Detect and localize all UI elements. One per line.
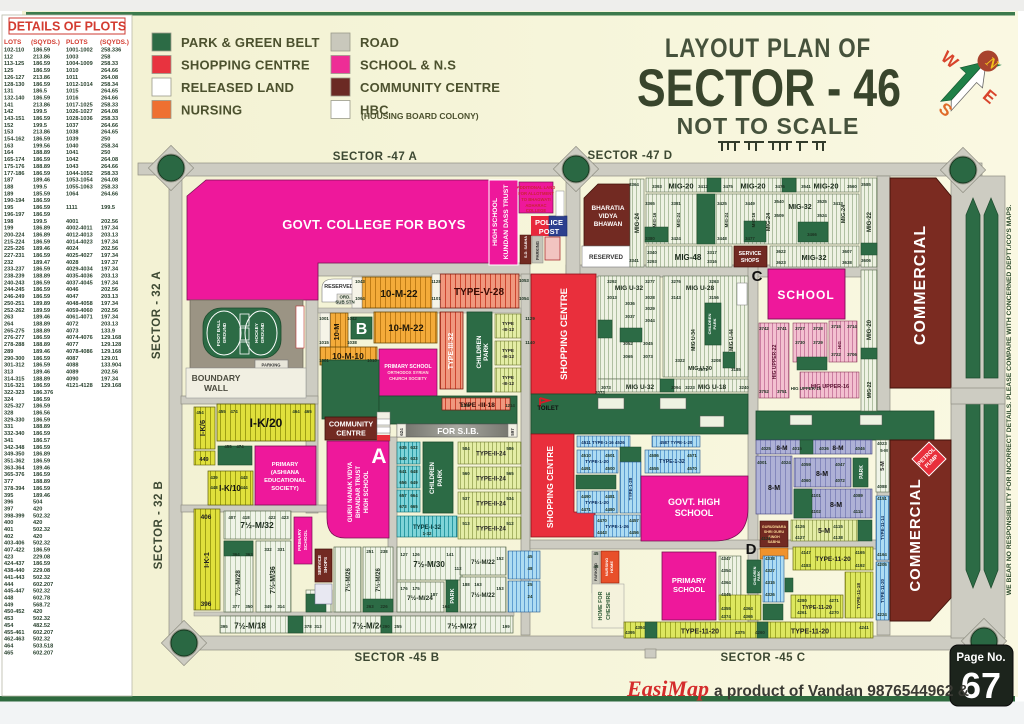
svg-text:190-194: 190-194 (4, 198, 25, 204)
svg-text:1015: 1015 (319, 340, 329, 345)
svg-text:197.34: 197.34 (101, 267, 119, 273)
svg-text:3365: 3365 (645, 201, 655, 206)
svg-text:4121-4128: 4121-4128 (66, 383, 93, 389)
svg-text:199.5: 199.5 (33, 185, 47, 191)
svg-text:NOT TO SCALE: NOT TO SCALE (677, 113, 860, 139)
svg-text:3623: 3623 (776, 260, 786, 265)
svg-text:314-315: 314-315 (4, 376, 25, 382)
svg-text:4114: 4114 (853, 509, 863, 514)
svg-text:45: 45 (528, 554, 533, 559)
svg-text:GROUND: GROUND (260, 322, 265, 343)
svg-text:1026-1027: 1026-1027 (66, 109, 93, 115)
svg-text:MIG-16: MIG-16 (652, 212, 657, 227)
svg-text:197.34: 197.34 (101, 301, 119, 307)
svg-text:1053-1054: 1053-1054 (66, 178, 94, 184)
svg-text:198: 198 (4, 219, 13, 225)
svg-text:4491: 4491 (581, 466, 591, 471)
svg-text:GOVT. HIGH: GOVT. HIGH (668, 497, 720, 507)
svg-text:CHESHIRE: CHESHIRE (606, 592, 612, 620)
svg-text:SCHOOL: SCHOOL (777, 288, 834, 302)
svg-text:COMMERCIAL: COMMERCIAL (912, 225, 929, 345)
svg-text:188: 188 (462, 582, 470, 587)
svg-text:534: 534 (506, 496, 514, 501)
svg-text:TYPE-II-24: TYPE-II-24 (476, 452, 506, 458)
svg-text:584: 584 (462, 446, 470, 451)
svg-text:25: 25 (528, 582, 533, 587)
svg-text:COMMERCIAL: COMMERCIAL (907, 478, 924, 591)
svg-text:TYPE-1-20: TYPE-1-20 (585, 459, 609, 465)
svg-text:FOOT BALL: FOOT BALL (216, 320, 221, 346)
svg-text:455: 455 (224, 444, 232, 449)
svg-text:A: A (371, 445, 386, 468)
svg-text:186.59: 186.59 (33, 253, 50, 259)
svg-text:7½-M/30: 7½-M/30 (413, 560, 445, 569)
svg-text:3276: 3276 (671, 279, 681, 284)
svg-text:229.08: 229.08 (33, 568, 50, 574)
svg-text:MIG-22: MIG-22 (867, 381, 873, 398)
svg-text:10-M-22: 10-M-22 (380, 289, 418, 300)
svg-text:565: 565 (506, 471, 514, 476)
svg-text:TYPE-11-20: TYPE-11-20 (791, 629, 829, 636)
svg-text:453: 453 (4, 616, 13, 622)
svg-text:PRIMARY: PRIMARY (297, 528, 303, 551)
svg-text:132-140: 132-140 (4, 95, 25, 101)
svg-text:CHILDREN: CHILDREN (476, 335, 483, 368)
svg-text:4586: 4586 (649, 453, 659, 458)
svg-text:4587 TYPE-1-20: 4587 TYPE-1-20 (660, 440, 693, 445)
svg-text:4047: 4047 (835, 462, 845, 467)
svg-text:395: 395 (4, 493, 13, 499)
svg-text:1003: 1003 (66, 54, 78, 60)
svg-text:5-M: 5-M (880, 448, 888, 453)
svg-text:314: 314 (277, 604, 285, 609)
svg-text:402: 402 (4, 534, 13, 540)
svg-text:3540: 3540 (774, 199, 784, 204)
svg-text:4183: 4183 (801, 563, 811, 568)
svg-text:189.46: 189.46 (33, 315, 50, 321)
svg-text:186.59: 186.59 (33, 287, 50, 293)
svg-text:640: 640 (399, 456, 407, 461)
svg-text:3143: 3143 (671, 295, 681, 300)
svg-text:203.13: 203.13 (101, 294, 118, 300)
svg-text:4023: 4023 (877, 441, 887, 446)
svg-text:186.59: 186.59 (33, 404, 50, 410)
svg-text:TOILET: TOILET (537, 406, 559, 412)
svg-text:202.56: 202.56 (101, 219, 118, 225)
svg-text:329-330: 329-330 (4, 417, 25, 423)
svg-text:SECTOR -45 C: SECTOR -45 C (720, 652, 805, 664)
svg-text:3317: 3317 (707, 250, 717, 255)
svg-text:SHOPS: SHOPS (323, 557, 328, 573)
svg-text:MIG U-44: MIG U-44 (729, 329, 735, 351)
svg-text:186.59: 186.59 (33, 548, 50, 554)
svg-text:635: 635 (399, 445, 407, 450)
svg-text:202.56: 202.56 (101, 287, 118, 293)
svg-text:4241: 4241 (859, 625, 869, 630)
svg-text:113-125: 113-125 (4, 61, 24, 67)
svg-text:4271: 4271 (829, 598, 839, 603)
svg-text:188.89: 188.89 (33, 164, 50, 170)
svg-text:141: 141 (4, 102, 13, 108)
svg-text:1016: 1016 (66, 95, 78, 101)
svg-text:COMMUNITY: COMMUNITY (329, 420, 374, 429)
svg-text:423: 423 (4, 554, 13, 560)
svg-text:422: 422 (268, 515, 276, 520)
svg-text:154-162: 154-162 (4, 137, 25, 143)
svg-text:7½-M/24: 7½-M/24 (352, 622, 384, 631)
svg-text:1028-1036: 1028-1036 (66, 116, 93, 122)
svg-text:186.59: 186.59 (33, 486, 50, 492)
svg-text:325-327: 325-327 (4, 404, 25, 410)
svg-text:188.89: 188.89 (33, 342, 50, 348)
svg-text:3094: 3094 (671, 385, 681, 390)
svg-text:SHOPPING CENTRE: SHOPPING CENTRE (181, 57, 310, 72)
svg-text:186.59: 186.59 (33, 417, 50, 423)
svg-text:396: 396 (201, 601, 212, 608)
svg-text:512: 512 (506, 521, 514, 526)
svg-text:1012-1014: 1012-1014 (66, 82, 94, 88)
svg-text:(SQYDS.): (SQYDS.) (31, 39, 60, 46)
svg-text:1064: 1064 (66, 191, 79, 197)
svg-text:SOCIETY): SOCIETY) (271, 486, 298, 492)
svg-text:1038: 1038 (347, 340, 357, 345)
svg-text:-III-12: -III-12 (502, 354, 514, 359)
svg-text:258: 258 (101, 54, 110, 60)
svg-text:7½-M/22: 7½-M/22 (471, 592, 495, 599)
svg-text:186.59: 186.59 (33, 561, 50, 567)
svg-text:276-277: 276-277 (4, 335, 25, 341)
svg-text:1010: 1010 (367, 358, 377, 363)
svg-text:4090: 4090 (66, 376, 78, 382)
svg-text:641: 641 (399, 469, 407, 474)
svg-text:186.5: 186.5 (33, 89, 47, 95)
svg-text:HIG UPPER-16: HIG UPPER-16 (791, 386, 822, 391)
svg-text:I-K-1: I-K-1 (204, 552, 211, 568)
svg-text:186.59: 186.59 (33, 82, 50, 88)
svg-text:263: 263 (366, 604, 374, 609)
svg-text:3380: 3380 (645, 236, 655, 241)
svg-text:SCHOOL: SCHOOL (303, 530, 309, 551)
svg-text:202.56: 202.56 (101, 369, 118, 375)
svg-text:164: 164 (442, 604, 450, 609)
svg-text:322-323: 322-323 (4, 390, 25, 396)
svg-text:188.89: 188.89 (33, 328, 50, 334)
svg-text:264.08: 264.08 (101, 157, 118, 163)
svg-text:189: 189 (4, 191, 13, 197)
svg-text:7½-M/18: 7½-M/18 (234, 622, 266, 631)
svg-text:45: 45 (594, 551, 599, 556)
svg-text:MIG-20: MIG-20 (813, 182, 838, 191)
svg-text:1140: 1140 (525, 340, 535, 345)
svg-text:141: 141 (446, 552, 454, 557)
svg-text:133.904: 133.904 (101, 363, 122, 369)
svg-text:189.46: 189.46 (33, 246, 50, 252)
svg-text:365-376: 365-376 (4, 472, 25, 478)
svg-text:238-239: 238-239 (4, 274, 25, 280)
svg-text:186.59: 186.59 (33, 212, 50, 218)
svg-text:PARK: PARK (483, 343, 490, 361)
svg-text:143-151: 143-151 (4, 116, 25, 122)
svg-text:1040: 1040 (66, 143, 78, 149)
svg-text:465: 465 (304, 409, 312, 414)
svg-text:3171: 3171 (698, 367, 708, 372)
svg-text:DETAILS OF PLOTS: DETAILS OF PLOTS (8, 20, 127, 34)
svg-text:1015: 1015 (66, 89, 78, 95)
svg-text:513: 513 (462, 521, 470, 526)
svg-text:3013: 3013 (607, 295, 617, 300)
svg-text:197.34: 197.34 (101, 280, 119, 286)
svg-text:199.5: 199.5 (101, 205, 115, 211)
svg-text:176: 176 (400, 586, 408, 591)
svg-text:PARK: PARK (437, 469, 444, 487)
svg-text:420: 420 (33, 534, 42, 540)
svg-text:186.89: 186.89 (33, 452, 50, 458)
svg-text:8-M: 8-M (816, 471, 828, 478)
svg-text:48: 48 (528, 566, 533, 571)
svg-text:TYPE-II-24: TYPE-II-24 (476, 502, 506, 508)
svg-text:7½-M/36: 7½-M/36 (269, 566, 277, 594)
svg-text:4060: 4060 (801, 478, 811, 483)
svg-text:142: 142 (4, 109, 13, 115)
svg-text:4048-4058: 4048-4058 (66, 301, 93, 307)
svg-text:(SQYDS.): (SQYDS.) (100, 39, 129, 46)
svg-text:186.376: 186.376 (33, 390, 53, 396)
svg-text:406: 406 (201, 514, 212, 521)
svg-text:189.59: 189.59 (33, 308, 50, 314)
svg-text:264.66: 264.66 (101, 123, 118, 129)
svg-text:7½-M/28: 7½-M/28 (234, 570, 242, 596)
svg-text:3393: 3393 (652, 184, 662, 189)
svg-text:3477: 3477 (745, 236, 755, 241)
svg-text:RELEASED LAND: RELEASED LAND (181, 80, 294, 95)
svg-text:1043: 1043 (66, 164, 78, 170)
svg-text:B: B (356, 321, 368, 338)
svg-text:186.59: 186.59 (33, 294, 50, 300)
svg-text:CENTRE: CENTRE (336, 429, 366, 438)
svg-text:186.59: 186.59 (33, 205, 50, 211)
svg-text:112: 112 (4, 54, 13, 60)
svg-text:HOME FOR: HOME FOR (598, 591, 604, 620)
svg-text:4012-4013: 4012-4013 (66, 232, 93, 238)
svg-text:TYPE: TYPE (502, 375, 514, 380)
svg-text:3045: 3045 (643, 341, 653, 346)
svg-text:1039: 1039 (66, 137, 78, 143)
svg-text:465: 465 (4, 650, 13, 656)
svg-text:4072: 4072 (835, 478, 845, 483)
svg-text:SHOPPING CENTRE: SHOPPING CENTRE (559, 288, 570, 380)
svg-text:4014-4023: 4014-4023 (66, 239, 93, 245)
svg-text:24: 24 (528, 594, 533, 599)
svg-text:188.89: 188.89 (33, 274, 50, 280)
svg-text:3730: 3730 (795, 340, 805, 345)
svg-text:250: 250 (101, 137, 110, 143)
svg-text:1054: 1054 (519, 296, 529, 301)
svg-text:131: 131 (4, 89, 13, 95)
svg-text:4481: 4481 (605, 494, 615, 499)
svg-text:SECTOR - 46: SECTOR - 46 (637, 59, 901, 118)
svg-text:1042: 1042 (347, 316, 357, 321)
svg-text:4029-4034: 4029-4034 (66, 267, 94, 273)
svg-text:186.59: 186.59 (33, 198, 50, 204)
svg-text:4025: 4025 (761, 446, 771, 451)
svg-text:4443: 4443 (597, 530, 607, 535)
svg-text:SHOPS: SHOPS (741, 258, 760, 264)
svg-text:4024: 4024 (781, 460, 791, 465)
svg-text:7½-M/26: 7½-M/26 (375, 568, 382, 592)
svg-text:7½-M/32: 7½-M/32 (240, 520, 274, 530)
svg-text:FOR ALLOTMENT: FOR ALLOTMENT (518, 191, 554, 196)
svg-text:3424: 3424 (671, 236, 681, 241)
svg-text:4270: 4270 (829, 610, 839, 615)
svg-text:S.D. SABHA: S.D. SABHA (524, 236, 528, 258)
svg-text:350: 350 (245, 604, 253, 609)
svg-text:407: 407 (228, 515, 236, 520)
svg-text:445-447: 445-447 (4, 589, 25, 595)
svg-text:3466: 3466 (807, 232, 817, 237)
svg-text:633: 633 (410, 456, 418, 461)
svg-text:152: 152 (4, 123, 13, 129)
svg-text:129.168: 129.168 (101, 383, 121, 389)
svg-text:1037: 1037 (66, 123, 78, 129)
svg-text:8-M: 8-M (768, 485, 780, 492)
svg-text:8-M: 8-M (776, 445, 787, 452)
svg-text:301-312: 301-312 (4, 363, 25, 369)
svg-text:4072: 4072 (66, 322, 78, 328)
svg-text:250-251: 250-251 (4, 301, 25, 307)
svg-text:GOVT. COLLEGE FOR BOYS: GOVT. COLLEGE FOR BOYS (282, 217, 466, 232)
svg-text:186.59: 186.59 (33, 472, 50, 478)
svg-text:188: 188 (4, 185, 13, 191)
svg-text:632: 632 (410, 445, 418, 450)
svg-text:7½-M/27: 7½-M/27 (447, 622, 477, 631)
svg-text:424-437: 424-437 (4, 561, 25, 567)
svg-text:3727: 3727 (795, 326, 805, 331)
svg-text:MIG-48: MIG-48 (675, 253, 702, 262)
svg-text:502.32: 502.32 (33, 637, 50, 643)
svg-text:4260: 4260 (755, 630, 765, 635)
svg-text:4205: 4205 (877, 562, 887, 567)
svg-text:3052: 3052 (623, 341, 633, 346)
svg-text:4078-4086: 4078-4086 (66, 349, 93, 355)
svg-text:1111: 1111 (66, 205, 78, 211)
svg-text:PARKING: PARKING (535, 241, 540, 260)
svg-text:4077: 4077 (66, 342, 78, 348)
svg-text:BHANDAR TRUST: BHANDAR TRUST (356, 466, 362, 518)
svg-text:378: 378 (304, 624, 312, 629)
svg-text:363: 363 (245, 552, 253, 557)
svg-text:PARKING: PARKING (262, 363, 281, 368)
svg-text:395: 395 (220, 624, 228, 629)
svg-text:4115: 4115 (833, 524, 843, 529)
svg-text:197.34: 197.34 (101, 376, 119, 382)
svg-text:WALL: WALL (204, 383, 228, 393)
svg-text:4165: 4165 (855, 550, 865, 555)
svg-text:4024: 4024 (66, 246, 79, 252)
svg-text:203.13: 203.13 (101, 274, 118, 280)
svg-text:1042: 1042 (66, 157, 78, 163)
svg-text:398-399: 398-399 (4, 513, 25, 519)
svg-text:3364: 3364 (629, 182, 639, 187)
svg-text:ADDITIONAL LAND: ADDITIONAL LAND (517, 185, 556, 190)
svg-text:263: 263 (4, 315, 13, 321)
svg-text:3729: 3729 (813, 340, 823, 345)
svg-text:200-224: 200-224 (4, 232, 25, 238)
svg-text:423: 423 (281, 515, 289, 520)
svg-text:3638: 3638 (842, 260, 852, 265)
svg-text:449: 449 (199, 457, 208, 463)
svg-text:3037: 3037 (625, 314, 635, 319)
svg-text:SCHOOL & N.S: SCHOOL & N.S (360, 57, 456, 72)
svg-text:665: 665 (410, 504, 418, 509)
svg-text:175-176: 175-176 (4, 164, 25, 170)
svg-text:TYPE-1-20: TYPE-1-20 (585, 500, 609, 506)
svg-text:624: 624 (399, 428, 404, 436)
svg-text:1197: 1197 (461, 403, 471, 408)
svg-text:1041: 1041 (66, 150, 78, 156)
svg-text:258.34: 258.34 (101, 82, 119, 88)
svg-text:568.72: 568.72 (33, 602, 50, 608)
svg-text:4151: 4151 (877, 496, 887, 501)
svg-text:129.01: 129.01 (101, 356, 118, 362)
svg-text:3752: 3752 (759, 389, 769, 394)
svg-text:246-249: 246-249 (4, 294, 25, 300)
svg-text:SHOPPING CENTRE: SHOPPING CENTRE (545, 446, 555, 529)
svg-text:4088: 4088 (877, 484, 887, 489)
svg-text:418: 418 (242, 515, 250, 520)
svg-text:258.33: 258.33 (101, 61, 118, 67)
svg-text:4001: 4001 (66, 219, 78, 225)
svg-text:112: 112 (454, 566, 462, 571)
svg-text:1004-1009: 1004-1009 (66, 61, 93, 67)
svg-text:377: 377 (4, 479, 13, 485)
svg-text:232: 232 (4, 260, 13, 266)
svg-text:SERVICE: SERVICE (317, 555, 322, 575)
svg-text:186.59: 186.59 (33, 95, 50, 101)
svg-text:4025-4027: 4025-4027 (66, 253, 93, 259)
svg-text:3425: 3425 (717, 201, 727, 206)
svg-text:313: 313 (314, 624, 322, 629)
svg-text:BOUNDARY: BOUNDARY (192, 373, 241, 383)
svg-text:186.59: 186.59 (33, 383, 50, 389)
svg-text:153: 153 (496, 586, 504, 591)
svg-text:464: 464 (4, 643, 14, 649)
svg-text:GROUND: GROUND (222, 322, 227, 343)
svg-text:3606: 3606 (861, 258, 871, 263)
svg-text:CHURCH SOCIETY: CHURCH SOCIETY (389, 376, 427, 381)
svg-text:3509: 3509 (774, 213, 784, 218)
svg-text:4001: 4001 (757, 460, 767, 465)
svg-text:258.33: 258.33 (101, 185, 118, 191)
svg-text:4395: 4395 (625, 630, 635, 635)
svg-text:HIG UPPER-22: HIG UPPER-22 (772, 344, 778, 379)
svg-text:4480: 4480 (605, 507, 615, 512)
svg-text:4280: 4280 (797, 598, 807, 603)
svg-text:152: 152 (496, 556, 504, 561)
svg-text:4089: 4089 (853, 493, 863, 498)
svg-text:4355: 4355 (721, 606, 731, 611)
svg-text:7½-M/26: 7½-M/26 (345, 568, 352, 592)
svg-text:342-348: 342-348 (4, 445, 25, 451)
svg-text:4570: 4570 (687, 466, 697, 471)
svg-text:215-224: 215-224 (4, 239, 25, 245)
svg-text:MIG U-32: MIG U-32 (626, 384, 655, 391)
svg-text:264.66: 264.66 (101, 164, 118, 170)
svg-text:213.86: 213.86 (33, 54, 50, 60)
svg-text:502.32: 502.32 (33, 575, 50, 581)
svg-text:3715: 3715 (831, 324, 841, 329)
svg-text:349-350: 349-350 (4, 452, 25, 458)
svg-text:4121: 4121 (761, 536, 771, 541)
